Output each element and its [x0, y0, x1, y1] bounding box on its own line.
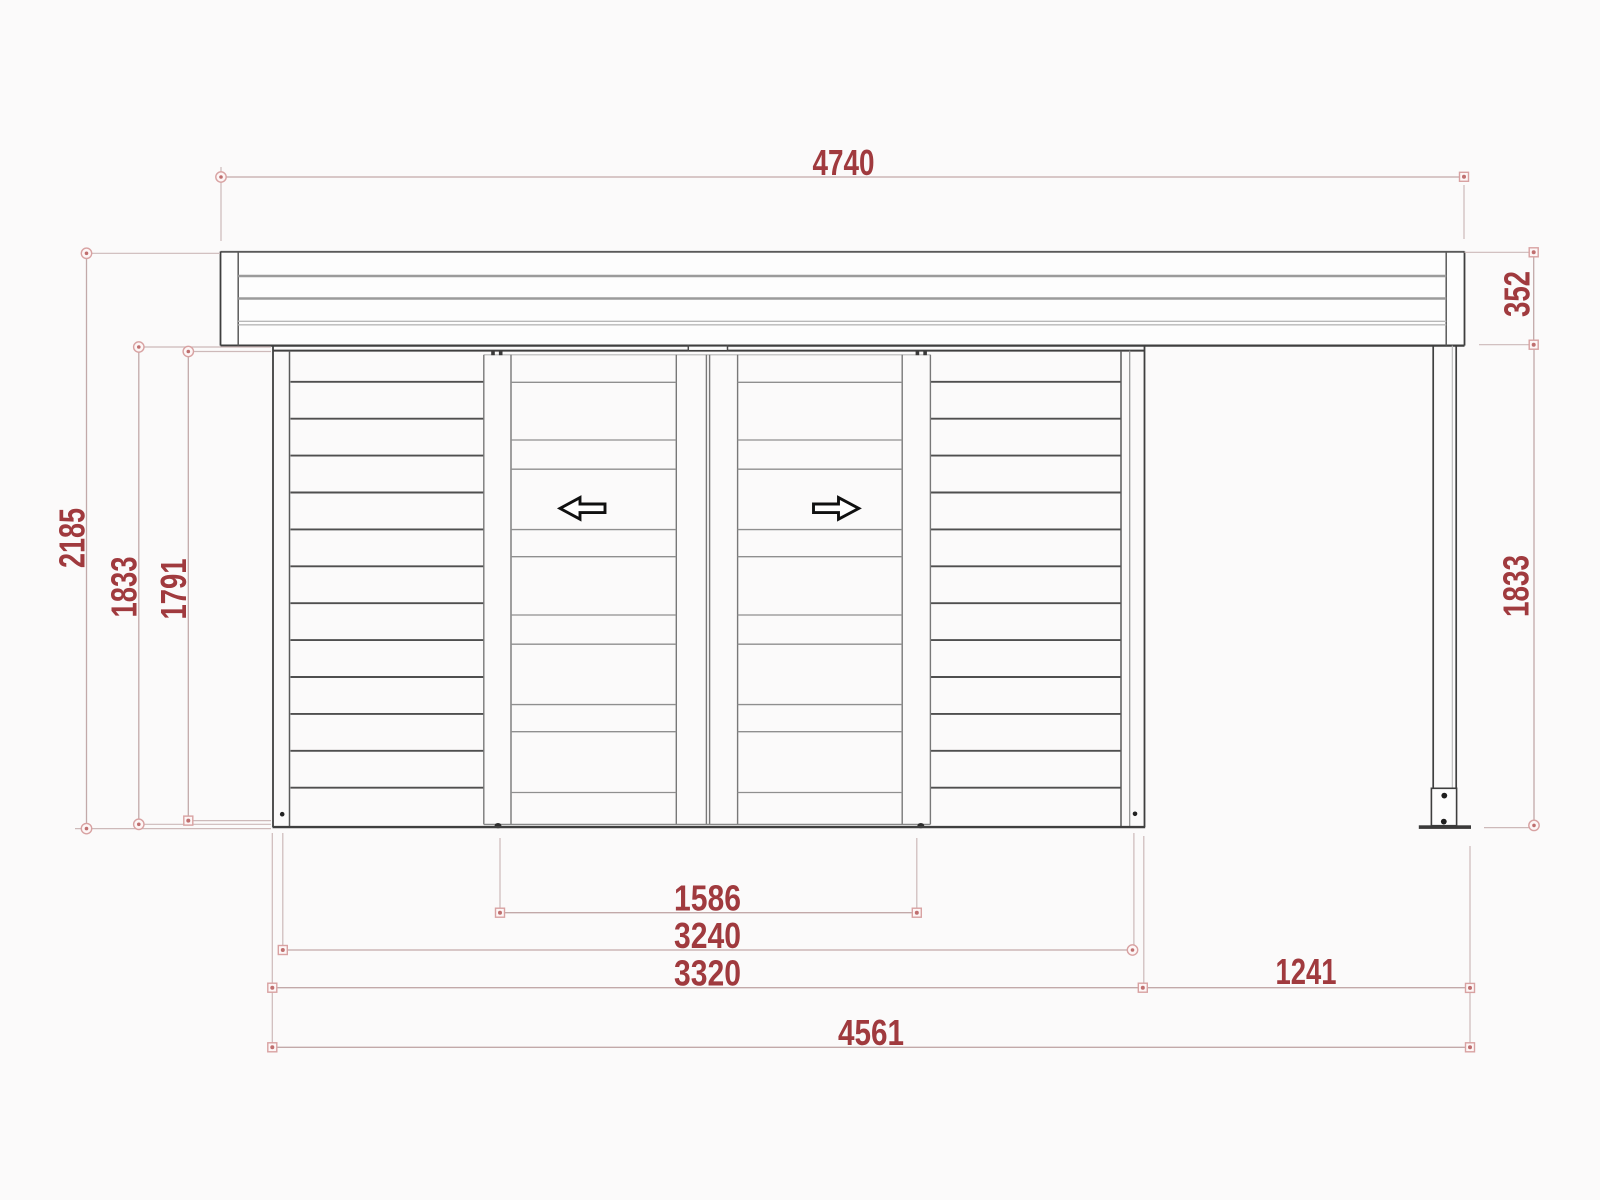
- svg-text:352: 352: [1497, 271, 1538, 317]
- svg-text:1791: 1791: [153, 559, 194, 620]
- svg-text:4561: 4561: [838, 1012, 904, 1053]
- svg-text:2185: 2185: [52, 508, 93, 568]
- svg-text:1586: 1586: [674, 878, 741, 919]
- svg-text:3240: 3240: [674, 915, 741, 956]
- svg-text:4740: 4740: [813, 142, 875, 183]
- svg-text:1241: 1241: [1276, 951, 1337, 992]
- svg-text:1833: 1833: [1496, 555, 1537, 617]
- svg-text:3320: 3320: [674, 953, 741, 994]
- svg-text:1833: 1833: [104, 557, 145, 618]
